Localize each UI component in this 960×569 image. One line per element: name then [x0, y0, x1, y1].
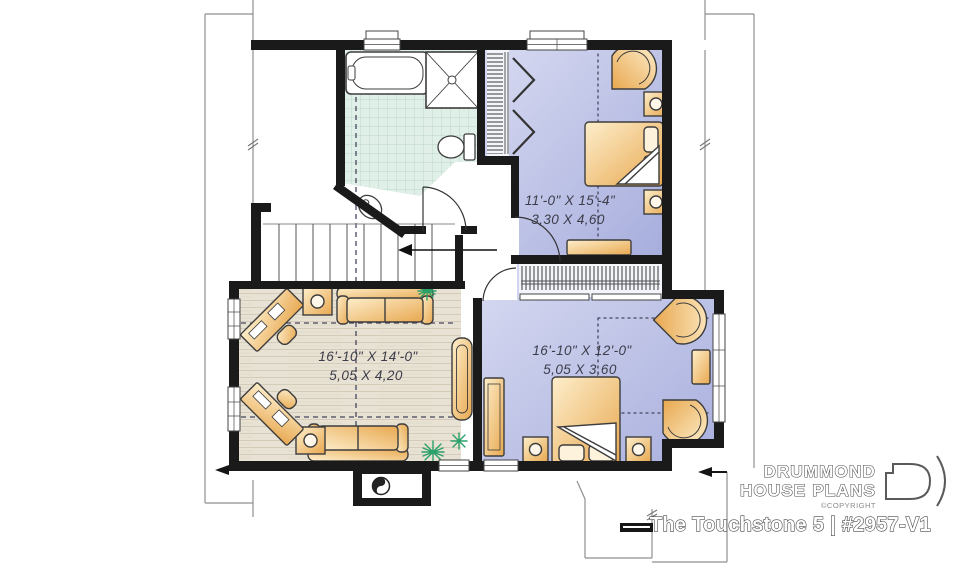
window	[228, 387, 240, 431]
stair-arrow-icon	[398, 244, 497, 256]
window	[713, 314, 725, 422]
sideboard	[452, 338, 472, 420]
copyright-label: ©COPYRIGHT	[821, 501, 876, 510]
brand-line1: DRUMMOND	[763, 462, 876, 481]
door-arc	[483, 268, 516, 301]
window	[484, 460, 518, 471]
armchair-icon	[612, 45, 656, 89]
roof-arrow-icon	[215, 465, 229, 475]
window	[364, 31, 400, 50]
bed-icon	[552, 377, 620, 465]
window	[228, 299, 240, 339]
closet-bottom-bedroom	[519, 264, 662, 300]
side-table-icon	[692, 350, 710, 384]
side-table-icon	[303, 288, 332, 315]
drummond-logo-mark-icon	[886, 456, 945, 506]
shower-icon	[426, 52, 478, 108]
fireplace-icon	[353, 466, 431, 506]
bedroom-bottom-dim-metric: 5,05 X 3,60	[543, 362, 617, 377]
plan-title: The Touchstone 5 | #2957-V1	[650, 514, 931, 536]
roof-arrow-icon	[698, 467, 712, 477]
nightstand-icon	[626, 437, 651, 462]
floor-plan-drawing: 11'-0" X 15'-4" 3,30 X 4,60 16'-10" X 14…	[0, 0, 960, 569]
toilet-icon	[438, 134, 475, 160]
bed-icon	[585, 122, 663, 186]
drummond-logo: DRUMMOND HOUSE PLANS ©COPYRIGHT	[740, 456, 945, 510]
sofa-icon	[337, 287, 433, 324]
window	[439, 460, 469, 471]
bedroom-bottom-dim-imperial: 16'-10" X 12'-0"	[532, 343, 632, 358]
floor-plan-sheet: 11'-0" X 15'-4" 3,30 X 4,60 16'-10" X 14…	[0, 0, 960, 569]
living-dim-imperial: 16'-10" X 14'-0"	[318, 349, 418, 364]
bedroom-top-dim-imperial: 11'-0" X 15'-4"	[525, 193, 616, 208]
bench	[567, 240, 631, 255]
bedroom-top-dim-metric: 3,30 X 4,60	[531, 212, 605, 227]
window	[527, 31, 587, 50]
plant-icon	[451, 433, 467, 449]
bathtub-icon	[346, 52, 428, 94]
armchair-icon	[663, 400, 707, 444]
dresser-icon	[484, 378, 504, 456]
nightstand-icon	[523, 437, 548, 462]
living-dim-metric: 5,05 X 4,20	[329, 368, 403, 383]
brand-line2: HOUSE PLANS	[740, 481, 876, 500]
